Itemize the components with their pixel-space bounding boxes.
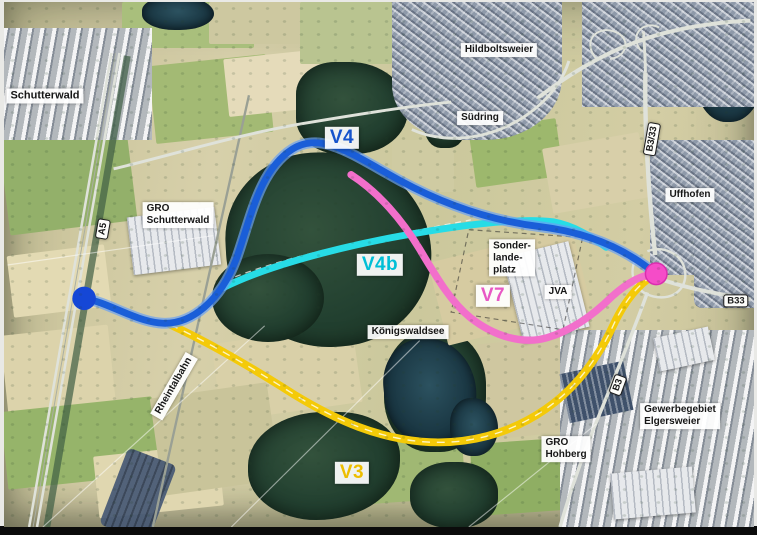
route-v3[interactable] — [170, 275, 654, 443]
east-endpoint-dot[interactable] — [645, 263, 667, 285]
label-route-V4b[interactable]: V4b — [357, 254, 403, 276]
route-v3-centerline — [170, 275, 654, 443]
aerial-map[interactable]: SchutterwaldHildboltsweierSüdringUffhofe… — [4, 2, 754, 527]
road-suedring — [412, 61, 569, 138]
label-schutterwald: Schutterwald — [6, 89, 83, 104]
photographed-plan: SchutterwaldHildboltsweierSüdringUffhofe… — [0, 0, 757, 535]
label-suedring: Südring — [457, 111, 503, 125]
field-lane — [8, 236, 214, 265]
label-gro-schutterwald: GRO Schutterwald — [143, 202, 214, 228]
label-koenigswaldsee: Königswaldsee — [368, 325, 449, 339]
label-route-V7[interactable]: V7 — [476, 285, 510, 307]
label-gewerbegebiet-elgersweier: Gewerbegebiet Elgersweier — [640, 403, 720, 429]
motorway-median — [33, 53, 115, 527]
label-gro-hohberg: GRO Hohberg — [541, 436, 590, 462]
road — [643, 31, 645, 72]
west-endpoint-dot[interactable] — [72, 287, 96, 311]
label-route-V3[interactable]: V3 — [335, 462, 369, 484]
motorway-a5 — [29, 53, 111, 527]
label-route-V4[interactable]: V4 — [325, 127, 359, 149]
road-b3-33 — [645, 73, 655, 256]
label-b33: B33 — [723, 294, 748, 307]
photo-bottom-edge — [0, 526, 757, 535]
label-sonderlandeplatz: Sonder- lande- platz — [489, 239, 535, 276]
label-jva: JVA — [545, 285, 572, 299]
label-hildboltsweier: Hildboltsweier — [461, 43, 537, 57]
label-uffhofen: Uffhofen — [665, 188, 714, 202]
